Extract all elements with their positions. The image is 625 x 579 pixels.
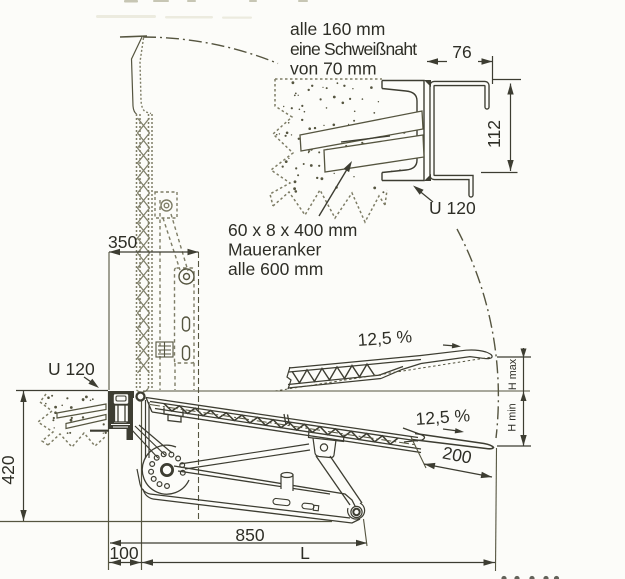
- svg-text:eine Schweißnaht: eine Schweißnaht: [290, 39, 417, 59]
- svg-text:L: L: [300, 543, 310, 563]
- svg-text:Maueranker: Maueranker: [228, 240, 322, 260]
- svg-text:76: 76: [452, 42, 471, 62]
- svg-text:100: 100: [109, 543, 138, 563]
- svg-text:12,5 %: 12,5 %: [415, 405, 471, 429]
- svg-text:H min: H min: [507, 403, 519, 431]
- svg-text:112: 112: [484, 120, 504, 148]
- svg-text:12,5 %: 12,5 %: [357, 326, 413, 350]
- svg-text:420: 420: [0, 455, 18, 484]
- svg-text:850: 850: [235, 525, 264, 545]
- svg-text:U 120: U 120: [48, 359, 95, 379]
- svg-text:60 x 8 x 400 mm: 60 x 8 x 400 mm: [228, 220, 357, 240]
- svg-text:H max: H max: [507, 358, 519, 390]
- svg-text:U 120: U 120: [429, 198, 476, 218]
- svg-text:alle 160 mm: alle 160 mm: [290, 19, 385, 39]
- svg-text:alle 600 mm: alle 600 mm: [228, 259, 323, 279]
- svg-text:350: 350: [108, 232, 137, 252]
- svg-text:von 70 mm: von 70 mm: [290, 59, 377, 79]
